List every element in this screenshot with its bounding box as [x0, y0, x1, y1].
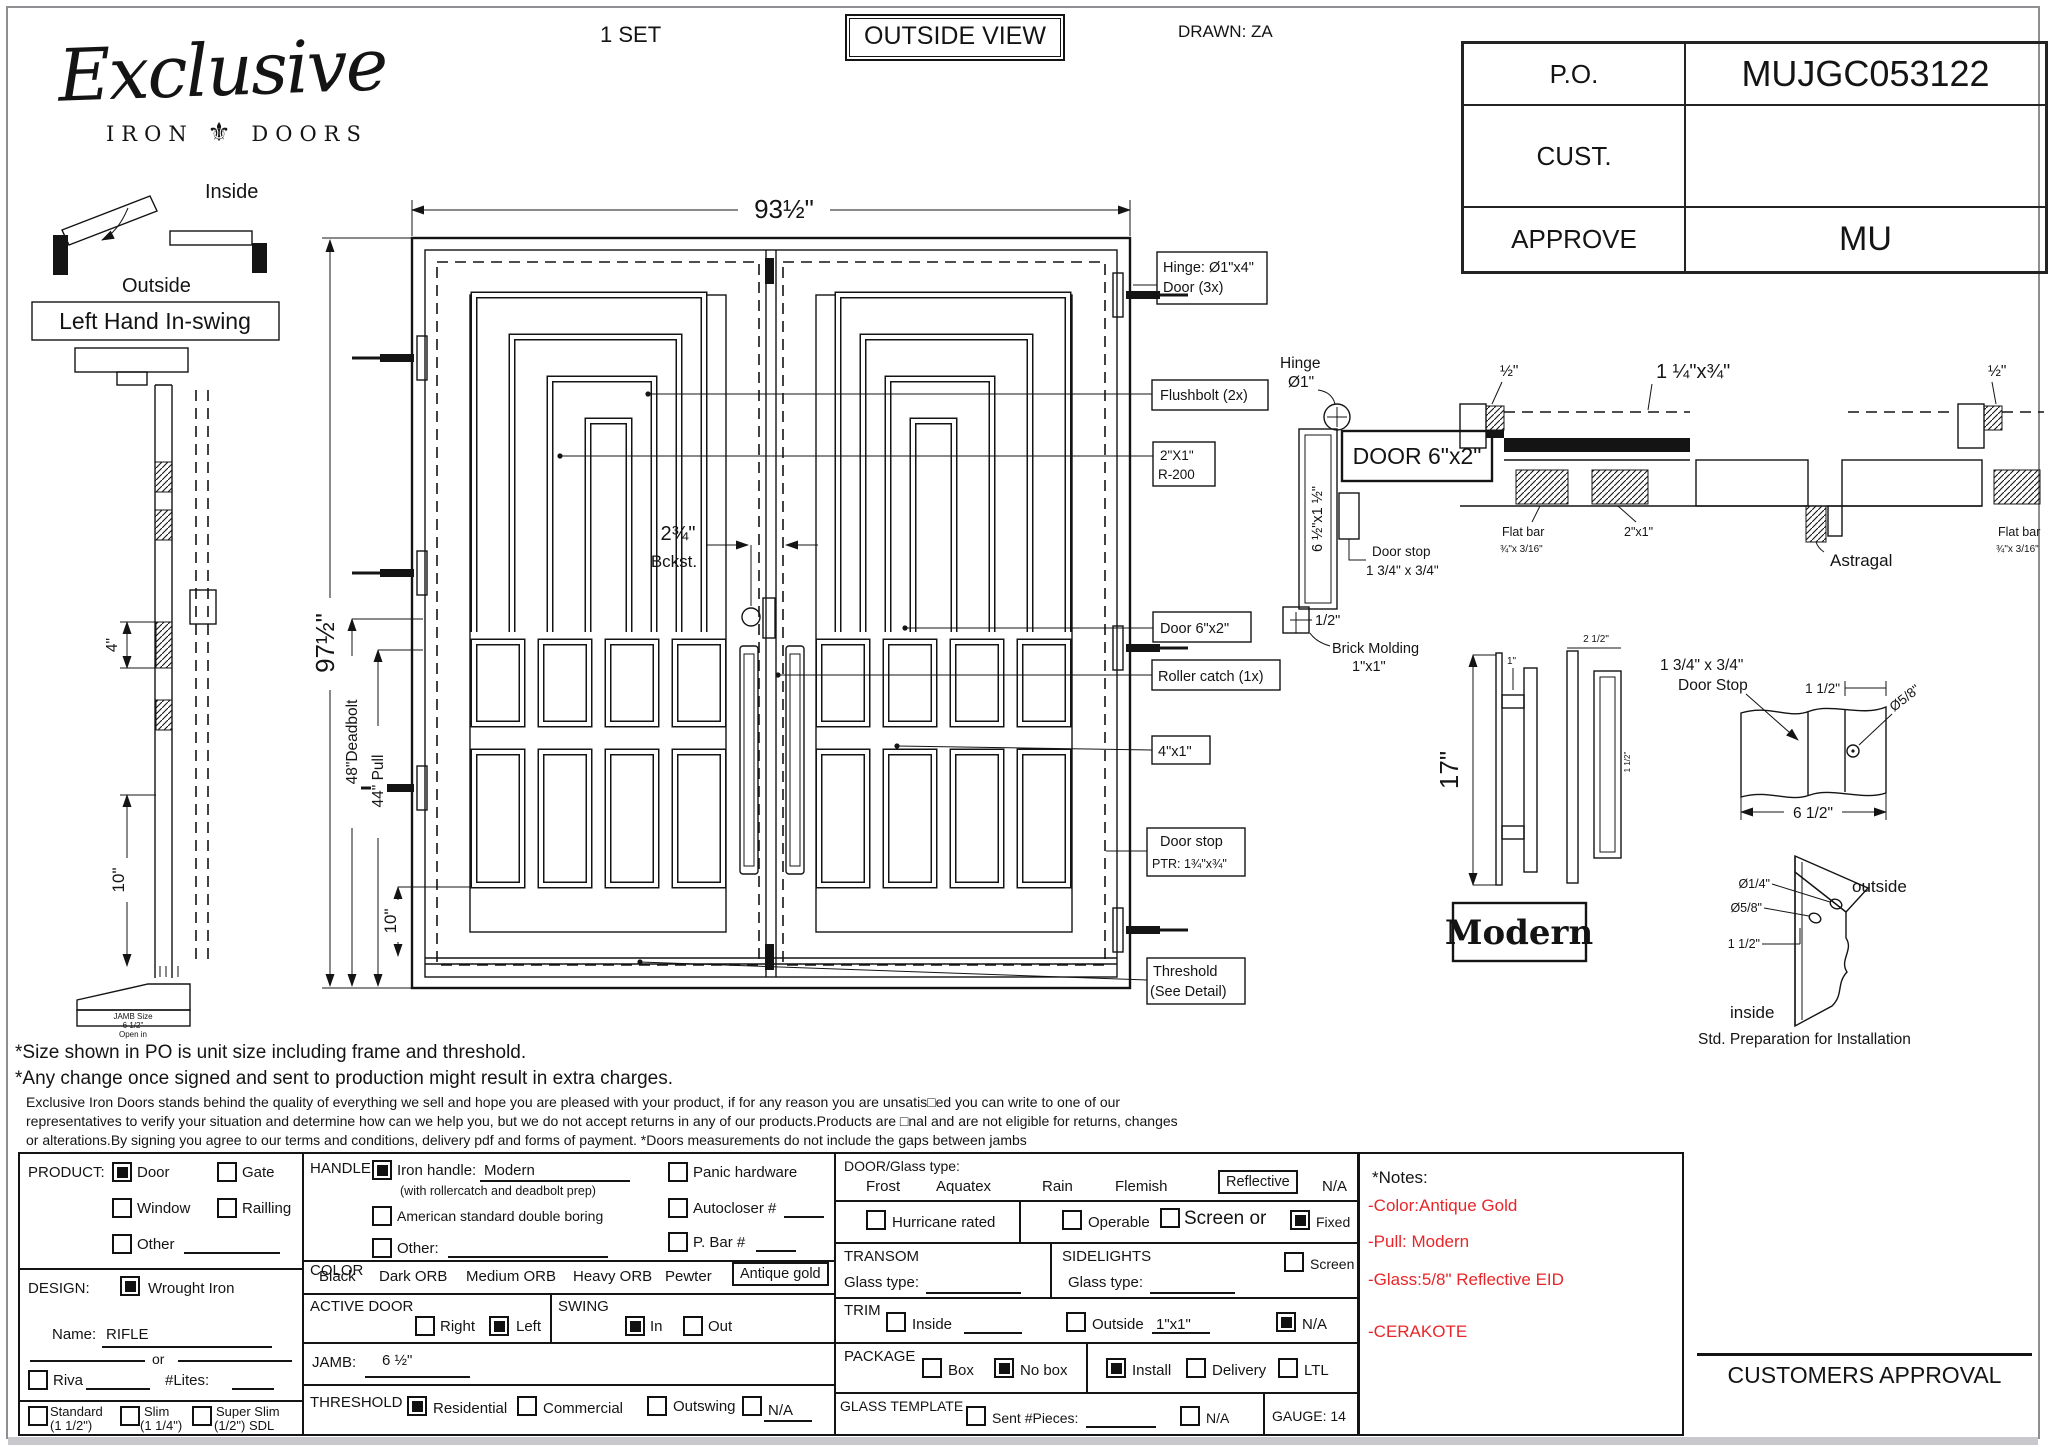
checkbox-super-slim[interactable]	[192, 1406, 212, 1426]
package-ltl: LTL	[1304, 1362, 1329, 1379]
checkbox-hurricane[interactable]	[866, 1210, 886, 1230]
trim-inside: Inside	[912, 1316, 952, 1333]
flat-bar-label-1b: ¾"x 3/16"	[1500, 544, 1543, 555]
checkbox-panic[interactable]	[668, 1162, 688, 1182]
handle-iron-blank	[480, 1180, 630, 1182]
prep-caption: Std. Preparation for Installation	[1698, 1031, 1911, 1048]
active-left: Left	[516, 1318, 541, 1335]
threshold-outswing: Outswing	[673, 1398, 736, 1415]
package-delivery: Delivery	[1212, 1362, 1266, 1379]
checkbox-trim-outside[interactable]	[1066, 1312, 1086, 1332]
callout-hinge-line1: Hinge: Ø1"x4"	[1163, 260, 1254, 276]
note-color: -Color:Antique Gold	[1368, 1196, 1517, 1216]
handle-detail: 17" 1" 2 1/2" 1 1/2" Modern	[1434, 634, 1632, 961]
color-pewter[interactable]: Pewter	[665, 1268, 712, 1285]
handle-dim-2: 2 1/2"	[1583, 634, 1609, 645]
checkbox-handle-other[interactable]	[372, 1238, 392, 1258]
half-inch-note: 1/2"	[1315, 613, 1340, 629]
active-right: Right	[440, 1318, 475, 1335]
checkbox-left[interactable]	[489, 1316, 509, 1336]
checkbox-trim-na[interactable]	[1276, 1312, 1296, 1332]
callout-r200-line1: 2"X1"	[1160, 448, 1194, 463]
template-na: N/A	[1206, 1410, 1229, 1426]
doorstop-note-line1: Door stop	[1372, 544, 1431, 559]
callout-doorstop-line2: PTR: 1¾"x¾"	[1152, 857, 1227, 871]
right-leaf-pattern	[819, 295, 1068, 885]
checkbox-swing-out[interactable]	[683, 1316, 703, 1336]
checkbox-trim-inside[interactable]	[886, 1312, 906, 1332]
callout-roller-catch: Roller catch (1x)	[1158, 669, 1264, 685]
checkbox-riva[interactable]	[28, 1370, 48, 1390]
jamb-section-detail: Hinge Ø1" 6 ½"x1 ½" DOOR 6"x2" Door stop…	[1280, 355, 1492, 675]
handle-style-name: Modern	[1445, 913, 1593, 953]
jamb-size-dim: 6 ½"x1 ½"	[1310, 486, 1326, 552]
backset-label: Bckst.	[651, 552, 697, 571]
glass-selected[interactable]: Reflective	[1218, 1170, 1298, 1194]
trim-outside-value[interactable]: 1"x1"	[1156, 1316, 1191, 1333]
checkbox-commercial[interactable]	[517, 1396, 537, 1416]
head-half-right: ½"	[1988, 363, 2006, 380]
product-window: Window	[137, 1200, 190, 1217]
handle-length-dim: 17"	[1434, 751, 1464, 789]
jamb-blank	[365, 1376, 470, 1378]
design-lites: #Lites:	[165, 1372, 209, 1389]
color-heavy-orb[interactable]: Heavy ORB	[573, 1268, 652, 1285]
design-name-value[interactable]: RIFLE	[106, 1326, 149, 1343]
latch-plate	[763, 598, 775, 638]
callout-hinge-line2: Door (3x)	[1163, 280, 1223, 296]
threshold-na-underline	[764, 1420, 812, 1422]
flat-bar-label-2a: Flat bar	[1998, 525, 2040, 539]
prep-outside-label: outside	[1852, 877, 1907, 896]
side-profile: 4" 10" JAMB Size 6 1/2" Open in	[75, 348, 216, 1039]
design-name-blank	[102, 1346, 272, 1348]
notes-title: *Notes:	[1372, 1168, 1428, 1188]
handle-panic: Panic hardware	[693, 1164, 797, 1181]
order-form: PRODUCT: Door Gate Window Railling Other…	[18, 1152, 1684, 1436]
glass-rain[interactable]: Rain	[1042, 1178, 1073, 1195]
glass-flemish[interactable]: Flemish	[1115, 1178, 1168, 1195]
trim-outside-underline	[1152, 1332, 1210, 1334]
checkbox-box[interactable]	[922, 1358, 942, 1378]
transom-label: TRANSOM	[844, 1248, 919, 1265]
jamb-value[interactable]: 6 ½"	[382, 1352, 412, 1369]
autocloser-blank[interactable]	[784, 1216, 824, 1218]
handle-other-blank[interactable]	[448, 1256, 608, 1258]
checkbox-product-other[interactable]	[112, 1234, 132, 1254]
checkbox-no-box[interactable]	[994, 1358, 1014, 1378]
jamb-size-note-2: 6 1/2"	[123, 1021, 144, 1030]
door-hardware	[740, 258, 804, 970]
jamb-label: JAMB:	[312, 1354, 356, 1371]
prep-dia-big: Ø5/8"	[1730, 901, 1762, 915]
drawing-sheet: Exclusive IRON ⚜ DOORS 1 SET OUTSIDE VIE…	[0, 0, 2048, 1447]
disclaimer-line2: representatives to verify your situation…	[26, 1113, 1178, 1129]
design-wrought-iron: Wrought Iron	[148, 1280, 234, 1297]
glass-hurricane: Hurricane rated	[892, 1214, 995, 1231]
doorstop-width-dim: 6 1/2"	[1793, 805, 1833, 822]
swing-out: Out	[708, 1318, 732, 1335]
callout-door-tube: Door 6"x2"	[1160, 621, 1229, 637]
product-door: Door	[137, 1164, 170, 1181]
handing-label: Left Hand In-swing	[59, 308, 251, 334]
riva-blank[interactable]	[86, 1388, 150, 1390]
bottom-rail-dim: 10"	[381, 909, 400, 934]
checkbox-autocloser[interactable]	[668, 1198, 688, 1218]
checkbox-template-na[interactable]	[1180, 1406, 1200, 1426]
thickness-super-slim-size: (1/2") SDL	[214, 1418, 274, 1433]
sent-pieces-blank[interactable]	[1086, 1426, 1156, 1428]
swing-in: In	[650, 1318, 663, 1335]
note-glass: -Glass:5/8" Reflective EID	[1368, 1270, 1564, 1290]
checkbox-railling[interactable]	[217, 1198, 237, 1218]
template-label: GLASS TEMPLATE	[840, 1398, 963, 1414]
brick-molding-line1: Brick Molding	[1332, 641, 1419, 657]
package-no-box: No box	[1020, 1362, 1068, 1379]
swing-label: SWING	[558, 1298, 609, 1315]
profile-dim-4: 4"	[104, 638, 121, 652]
checkbox-iron-handle[interactable]	[372, 1160, 392, 1180]
glass-na[interactable]: N/A	[1322, 1178, 1347, 1195]
glass-fixed: Fixed	[1316, 1214, 1350, 1230]
handle-american: American standard double boring	[397, 1208, 603, 1224]
trim-label: TRIM	[844, 1302, 881, 1319]
tube-2x1-label: 2"x1"	[1624, 525, 1653, 539]
swing-diagram: Inside Outside Left Hand In-swing	[32, 181, 279, 340]
checkbox-window[interactable]	[112, 1198, 132, 1218]
checkbox-door[interactable]	[112, 1162, 132, 1182]
product-other: Other	[137, 1236, 175, 1253]
checkbox-install[interactable]	[1106, 1358, 1126, 1378]
glass-frost[interactable]: Frost	[866, 1178, 900, 1195]
transom-glass-blank[interactable]	[926, 1292, 1021, 1294]
doorstop-size-label: 1 3/4" x 3/4"	[1660, 657, 1743, 674]
threshold-residential: Residential	[433, 1400, 507, 1417]
color-dark-orb[interactable]: Dark ORB	[379, 1268, 447, 1285]
design-label: DESIGN:	[28, 1280, 90, 1297]
door-tube-label: DOOR 6"x2"	[1353, 443, 1482, 469]
doorstop-dim-1: 1 1/2"	[1805, 681, 1840, 696]
color-selected[interactable]: Antique gold	[732, 1262, 829, 1286]
callout-4x1: 4"x1"	[1158, 744, 1192, 760]
deadbolt-cylinder	[742, 608, 760, 626]
threshold-label: THRESHOLD	[310, 1394, 403, 1411]
hinge-note-line1: Hinge	[1280, 355, 1321, 372]
handle-autocloser: Autocloser #	[693, 1200, 776, 1217]
handle-iron-value[interactable]: Modern	[484, 1162, 535, 1179]
thickness-slim-size: (1 1/4")	[140, 1418, 182, 1433]
left-pull-handle	[740, 646, 758, 874]
head-section-detail: ½" 1 ¼"x¾" Flat bar ¾"x 3/16" 2"x1" Astr…	[1460, 361, 2044, 570]
sidelights-glass-label: Glass type:	[1068, 1274, 1143, 1291]
sidelights-screen: Screen	[1310, 1256, 1354, 1272]
trim-inside-blank[interactable]	[964, 1332, 1022, 1334]
doorstop-detail: 1 3/4" x 3/4" Door Stop 1 1/2" Ø5/8" 6 1…	[1660, 657, 1923, 822]
flat-bar-label-1a: Flat bar	[1502, 525, 1544, 539]
prep-dia-small: Ø1/4"	[1738, 877, 1770, 891]
outside-label: Outside	[122, 275, 191, 297]
product-label: PRODUCT:	[28, 1164, 105, 1181]
checkbox-operable[interactable]	[1062, 1210, 1082, 1230]
handle-other: Other:	[397, 1240, 439, 1257]
checkbox-ltl[interactable]	[1278, 1358, 1298, 1378]
callout-threshold-line1: Threshold	[1153, 964, 1217, 980]
disclaimer-line3: or alterations.By signing you agree to o…	[26, 1132, 1027, 1148]
prep-inside-label: inside	[1730, 1003, 1774, 1022]
note-cerakote: -CERAKOTE	[1368, 1322, 1467, 1342]
package-label: PACKAGE	[844, 1348, 915, 1365]
handle-label: HANDLE	[310, 1160, 371, 1177]
handle-iron-sub: (with rollercatch and deadbolt prep)	[400, 1184, 596, 1198]
design-riva: Riva	[53, 1372, 83, 1389]
threshold-commercial: Commercial	[543, 1400, 623, 1417]
checkbox-swing-in[interactable]	[625, 1316, 645, 1336]
gauge-value: GAUGE: 14	[1272, 1408, 1346, 1424]
astragal-label: Astragal	[1830, 551, 1892, 570]
checkbox-sidelight-screen[interactable]	[1284, 1252, 1304, 1272]
trim-na: N/A	[1302, 1316, 1327, 1333]
checkbox-delivery[interactable]	[1186, 1358, 1206, 1378]
active-door-label: ACTIVE DOOR	[310, 1298, 413, 1315]
jamb-size-note-3: Open in	[119, 1030, 147, 1039]
checkbox-residential[interactable]	[407, 1396, 427, 1416]
threshold-na: N/A	[768, 1402, 793, 1419]
lites-blank[interactable]	[232, 1388, 274, 1390]
product-other-blank[interactable]	[184, 1252, 280, 1254]
doorstop-hole-dia: Ø5/8"	[1887, 681, 1923, 714]
product-gate: Gate	[242, 1164, 275, 1181]
prep-detail: Ø1/4" Ø5/8" 1 1/2" outside inside Std. P…	[1698, 856, 1911, 1048]
checkbox-slim[interactable]	[120, 1406, 140, 1426]
checkbox-right[interactable]	[415, 1316, 435, 1336]
checkbox-american-boring[interactable]	[372, 1206, 392, 1226]
hinge-note-line2: Ø1"	[1288, 374, 1314, 391]
thickness-super-slim: Super Slim	[216, 1404, 280, 1419]
pull-height-dim: 44" Pull	[370, 755, 387, 808]
glass-type-label: DOOR/Glass type:	[844, 1158, 960, 1174]
glass-operable: Operable	[1088, 1214, 1150, 1231]
thickness-standard-size: (1 1/2")	[50, 1418, 92, 1433]
head-astragal-bar-dim: 1 ¼"x¾"	[1656, 361, 1730, 383]
checkbox-standard[interactable]	[28, 1406, 48, 1426]
left-leaf-pattern	[474, 295, 723, 885]
transom-glass-label: Glass type:	[844, 1274, 919, 1291]
door-elevation: 93½" 97½" 48"Deadbolt 44" Pull 10" 2¾" B…	[310, 194, 1188, 988]
checkbox-threshold-na[interactable]	[742, 1396, 762, 1416]
callout-threshold-line2: (See Detail)	[1150, 984, 1227, 1000]
flat-bar-label-2b: ¾"x 3/16"	[1996, 544, 2039, 555]
template-sent: Sent #Pieces:	[992, 1410, 1078, 1426]
design-or: or	[152, 1351, 164, 1367]
checkbox-gate[interactable]	[217, 1162, 237, 1182]
jamb-size-note-1: JAMB Size	[113, 1012, 153, 1021]
product-railling: Railling	[242, 1200, 291, 1217]
height-dimension: 97½"	[310, 613, 340, 673]
checkbox-screen[interactable]	[1160, 1208, 1180, 1228]
head-half-left: ½"	[1500, 363, 1518, 380]
thickness-slim: Slim	[144, 1404, 169, 1419]
callout-flushbolt: Flushbolt (2x)	[1160, 388, 1248, 404]
right-pull-handle	[786, 646, 804, 874]
handle-pbar: P. Bar #	[693, 1234, 745, 1251]
signature-line[interactable]	[1697, 1353, 2032, 1356]
disclaimer-line1: Exclusive Iron Doors stands behind the q…	[26, 1094, 1120, 1110]
checkbox-pbar[interactable]	[668, 1232, 688, 1252]
flushbolt-top	[765, 258, 774, 284]
checkbox-outswing[interactable]	[647, 1396, 667, 1416]
handle-dim-1: 1"	[1507, 656, 1517, 667]
backset-value: 2¾"	[661, 523, 696, 545]
width-dimension: 93½"	[754, 194, 814, 224]
glass-aquatex[interactable]: Aquatex	[936, 1178, 991, 1195]
profile-dim-10: 10"	[109, 868, 128, 893]
color-black[interactable]: Black	[319, 1268, 356, 1285]
checkbox-sent-pieces[interactable]	[966, 1406, 986, 1426]
customers-approval-label: CUSTOMERS APPROVAL	[1697, 1362, 2032, 1389]
handle-dim-3: 1 1/2"	[1623, 752, 1632, 773]
note-changes: *Any change once signed and sent to prod…	[15, 1068, 673, 1090]
doorstop-name-label: Door Stop	[1678, 677, 1748, 694]
callout-r200-line2: R-200	[1158, 467, 1195, 482]
inside-label: Inside	[205, 181, 258, 203]
trim-outside: Outside	[1092, 1316, 1144, 1333]
checkbox-fixed[interactable]	[1290, 1210, 1310, 1230]
color-medium-orb[interactable]: Medium ORB	[466, 1268, 556, 1285]
note-size: *Size shown in PO is unit size including…	[15, 1042, 526, 1064]
sidelights-label: SIDELIGHTS	[1062, 1248, 1151, 1265]
deadbolt-height-dim: 48"Deadbolt	[344, 699, 361, 784]
design-name-label: Name:	[52, 1326, 96, 1343]
package-box: Box	[948, 1362, 974, 1379]
glass-screen-or: Screen or	[1184, 1208, 1266, 1230]
doorstop-note-line2: 1 3/4" x 3/4"	[1366, 563, 1439, 578]
sidelights-glass-blank[interactable]	[1150, 1292, 1235, 1294]
elevation-callouts: Hinge: Ø1"x4" Door (3x) Flushbolt (2x) 2…	[557, 252, 1280, 1004]
pbar-blank[interactable]	[756, 1250, 796, 1252]
checkbox-wrought-iron[interactable]	[120, 1276, 140, 1296]
prep-dim: 1 1/2"	[1728, 937, 1760, 951]
handle-iron: Iron handle:	[397, 1162, 476, 1179]
thickness-standard: Standard	[50, 1404, 103, 1419]
callout-doorstop-line1: Door stop	[1160, 834, 1223, 850]
brick-molding-line2: 1"x1"	[1352, 659, 1386, 675]
note-pull: -Pull: Modern	[1368, 1232, 1469, 1252]
package-install: Install	[1132, 1362, 1171, 1379]
